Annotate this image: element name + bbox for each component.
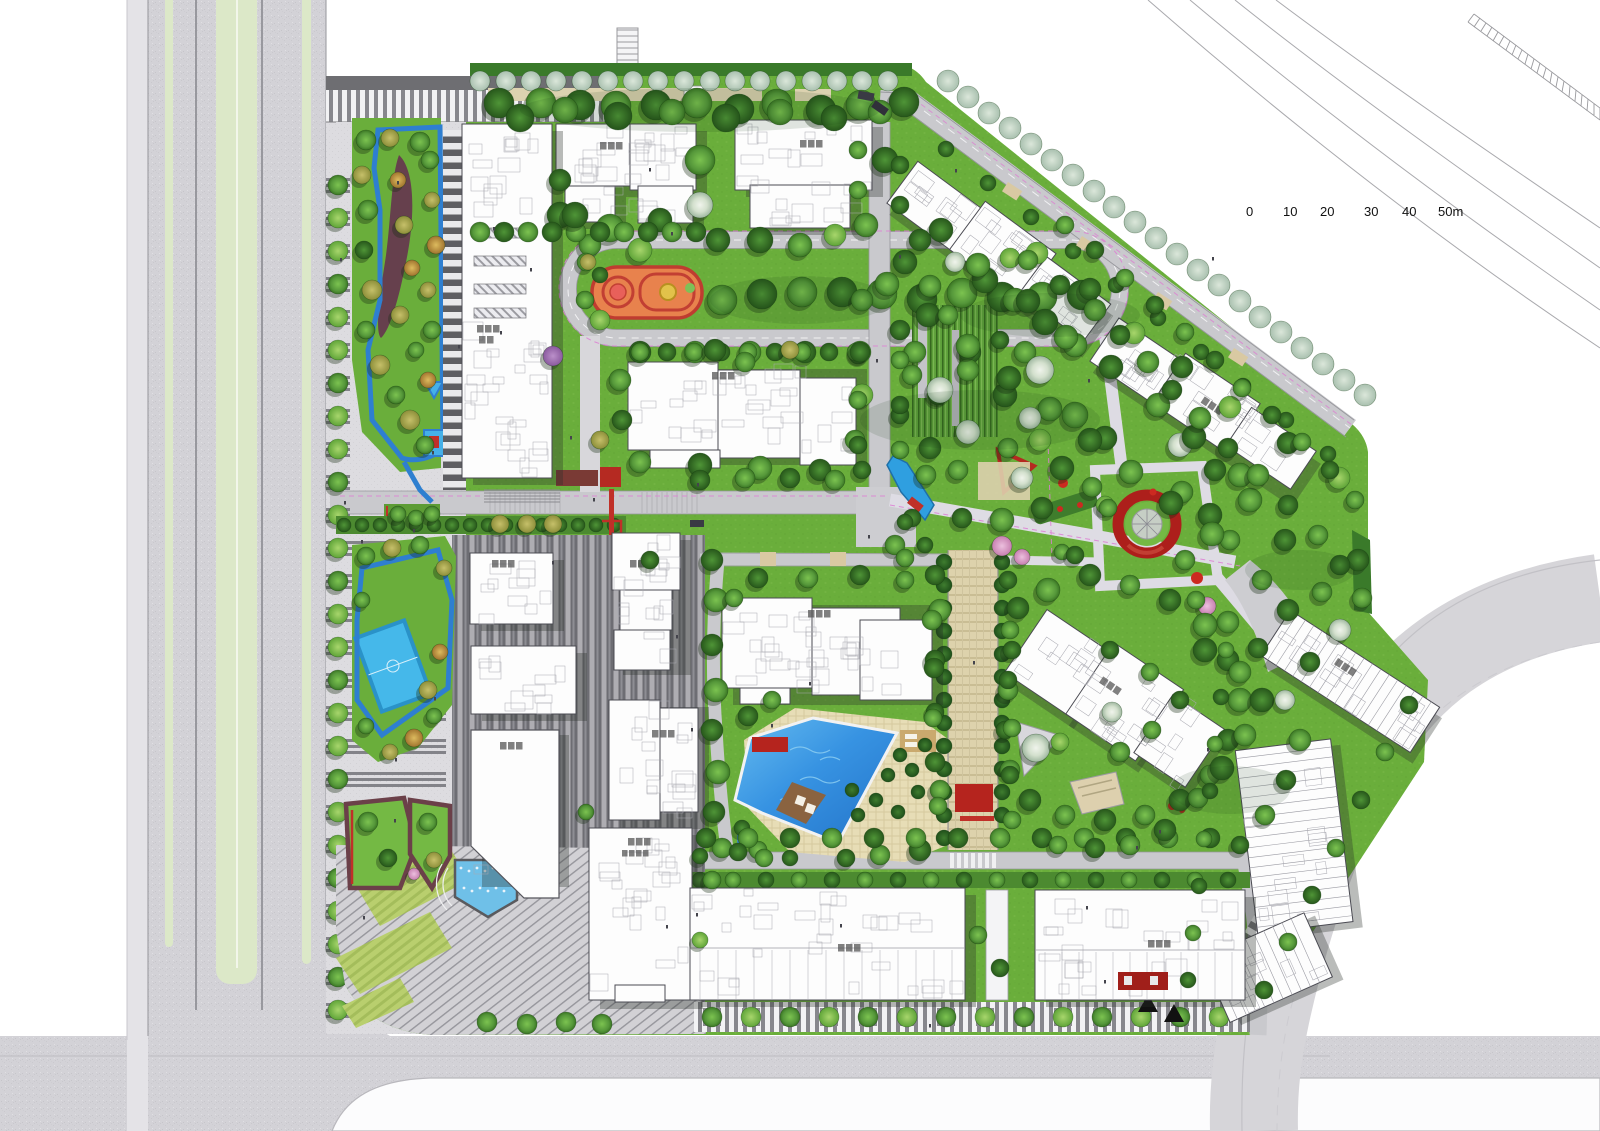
svg-text:20: 20 — [1320, 204, 1334, 219]
svg-text:50m: 50m — [1438, 204, 1463, 219]
svg-text:40: 40 — [1402, 204, 1416, 219]
svg-text:30: 30 — [1364, 204, 1378, 219]
svg-text:10: 10 — [1283, 204, 1297, 219]
svg-text:0: 0 — [1246, 204, 1253, 219]
